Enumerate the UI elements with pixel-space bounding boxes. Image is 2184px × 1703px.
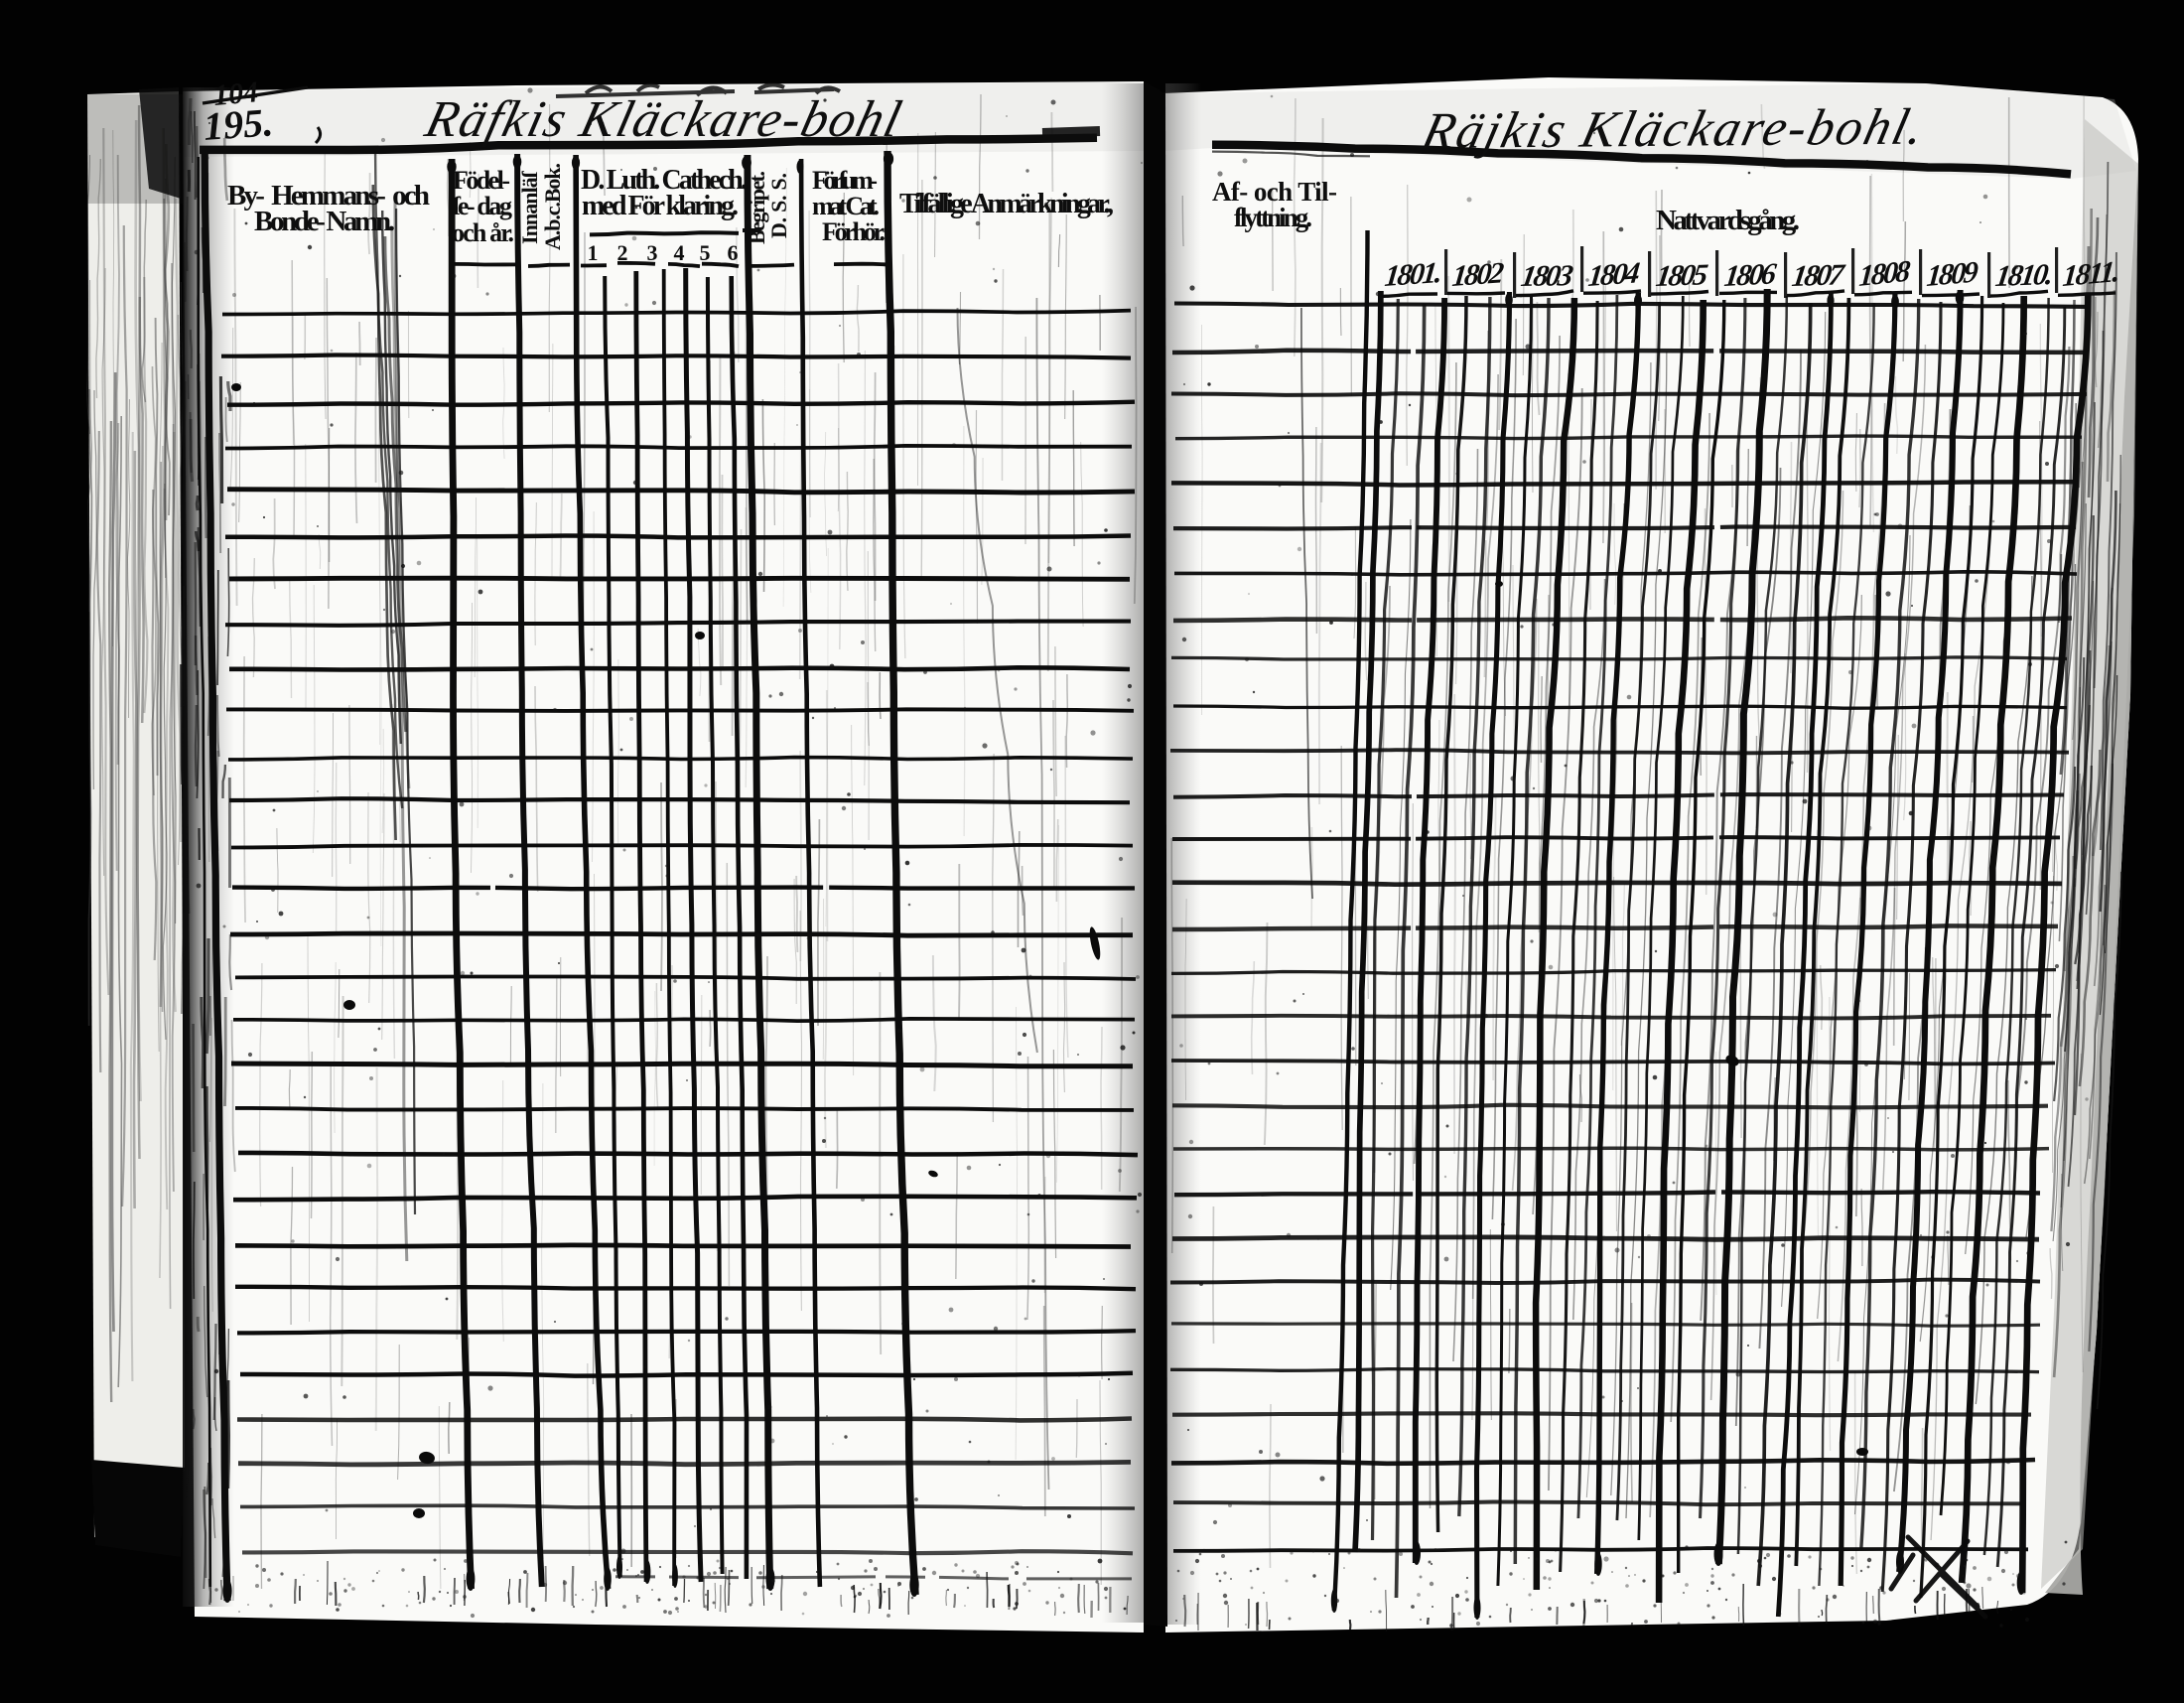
svg-text:Förhör.: Förhör.	[822, 217, 886, 246]
svg-text:flyttning.: flyttning.	[1234, 203, 1312, 232]
svg-text:1: 1	[588, 240, 599, 265]
svg-text:1809: 1809	[1925, 254, 1979, 293]
svg-text:3: 3	[647, 240, 658, 265]
svg-text:Tilfällige Anmärkningar.,: Tilfällige Anmärkningar.,	[899, 189, 1114, 219]
svg-text:1811.: 1811.	[2061, 254, 2121, 293]
svg-text:Nattvardsgång.: Nattvardsgång.	[1656, 205, 1800, 236]
svg-text:Innanläſ: Innanläſ	[517, 170, 542, 244]
svg-text:Födel-: Födel-	[453, 166, 510, 195]
svg-text:mat Cat.: mat Cat.	[812, 192, 880, 220]
svg-text:1803: 1803	[1519, 258, 1575, 293]
svg-text:6: 6	[728, 240, 739, 265]
svg-text:och år.: och år.	[452, 218, 514, 247]
svg-text:1802: 1802	[1450, 255, 1505, 293]
svg-text:1810.: 1810.	[1993, 257, 2056, 293]
svg-text:1806: 1806	[1722, 256, 1779, 293]
svg-text:5: 5	[700, 240, 711, 265]
svg-text:D. S. S.: D. S. S.	[766, 173, 791, 238]
svg-text:195.: 195.	[202, 99, 274, 149]
svg-text:A.b.c.Bok.: A.b.c.Bok.	[540, 163, 565, 250]
svg-text:1807: 1807	[1790, 257, 1848, 293]
svg-text:1805: 1805	[1654, 257, 1710, 293]
svg-text:1808: 1808	[1858, 253, 1912, 293]
svg-text:2: 2	[617, 240, 628, 265]
svg-text:med För klaring.: med För klaring.	[582, 191, 739, 221]
svg-text:1804: 1804	[1586, 255, 1641, 293]
svg-text:Förſum-: Förſum-	[812, 166, 878, 195]
svg-text:ſe- dag: ſe- dag	[453, 192, 512, 220]
svg-text:4: 4	[674, 240, 685, 265]
svg-text:Räjkis Kläckare-bohl.: Räjkis Kläckare-bohl.	[1416, 98, 1930, 160]
svg-text:1801.: 1801.	[1383, 255, 1443, 293]
svg-text:Bonde- Namn.: Bonde- Namn.	[254, 206, 395, 237]
